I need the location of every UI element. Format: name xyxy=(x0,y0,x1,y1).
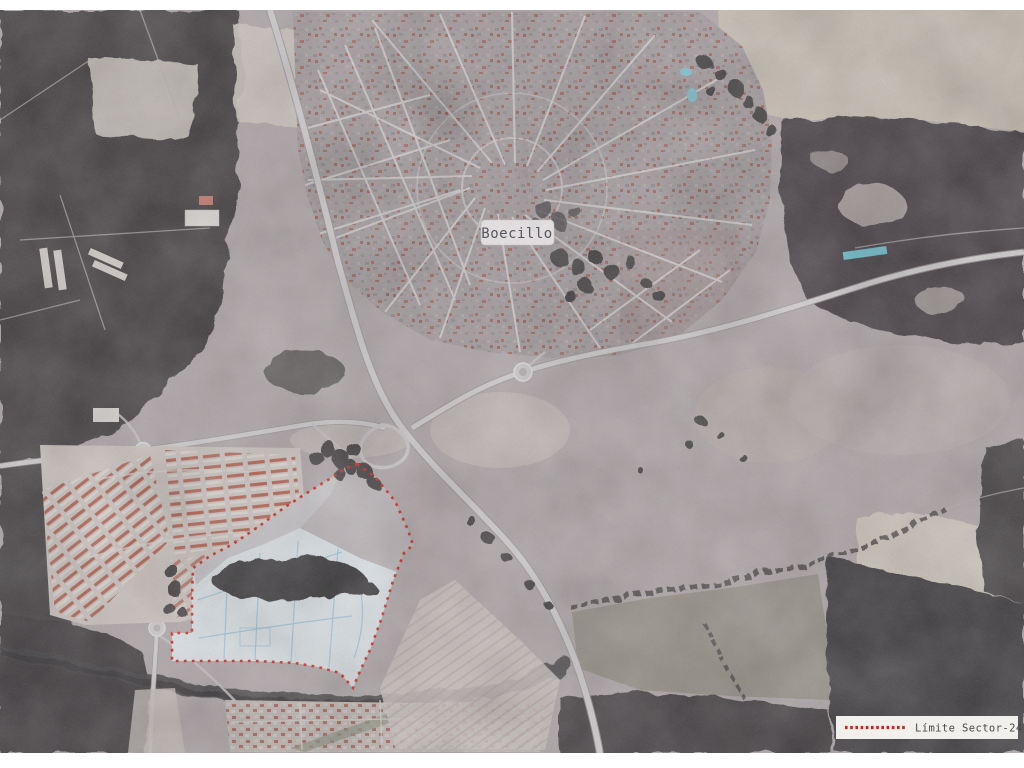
photo-grain-overlay xyxy=(0,10,1024,754)
town-label-text: Boecillo xyxy=(481,226,552,242)
aerial-photo-canvas: Boecillo Límite Sector-24 xyxy=(0,0,1024,768)
border-bottom xyxy=(0,753,1024,768)
legend-label: Límite Sector-24 xyxy=(915,723,1023,735)
legend: Límite Sector-24 xyxy=(836,716,1023,739)
town-label: Boecillo xyxy=(481,220,554,245)
aerial-map-screenshot: Boecillo Límite Sector-24 xyxy=(0,0,1024,768)
border-top xyxy=(0,0,1024,10)
